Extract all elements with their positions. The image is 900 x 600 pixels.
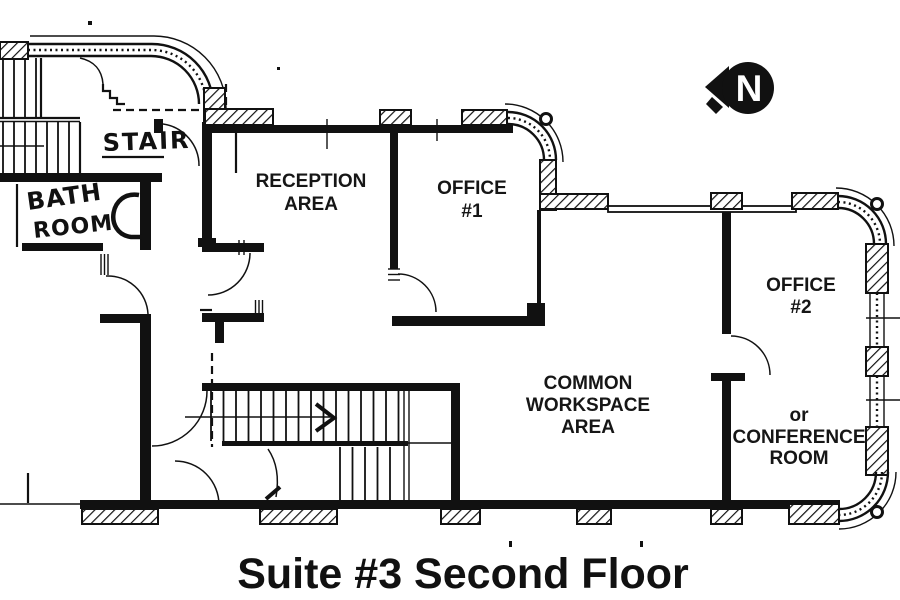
room-label-common-workspace: COMMON WORKSPACE AREA — [526, 373, 650, 438]
stair-label: STAIR — [102, 126, 191, 157]
svg-text:or: or — [790, 405, 810, 426]
room-label-reception: RECEPTION AREA — [256, 171, 367, 215]
door-arc — [398, 274, 436, 312]
door-arc — [175, 461, 219, 505]
office2-north-wall — [608, 188, 894, 246]
wall-pier — [789, 504, 839, 524]
wall-pier — [441, 509, 480, 524]
floor-plan-page: STAIR BATH ROOM — [0, 0, 900, 600]
room-label-bathroom: BATH ROOM — [25, 178, 114, 244]
svg-text:OFFICE: OFFICE — [766, 275, 836, 296]
curved-window-corner — [505, 104, 563, 162]
wall-pier — [866, 347, 888, 376]
svg-text:BATH: BATH — [25, 178, 104, 216]
north-letter: N — [736, 68, 763, 109]
stair-treads-upper — [211, 391, 399, 441]
wall-pier — [462, 110, 507, 125]
svg-text:COMMON: COMMON — [544, 373, 633, 394]
wall-pier — [866, 427, 888, 475]
column-marker — [541, 114, 552, 125]
wall-pier — [380, 110, 411, 125]
office2-divider-wall — [711, 212, 770, 503]
left-corridor — [0, 310, 219, 505]
north-wall — [203, 109, 513, 149]
door-arc — [152, 391, 207, 446]
curved-window-corner — [839, 472, 896, 529]
column-marker — [872, 199, 883, 210]
bathroom: BATH ROOM — [0, 173, 162, 314]
svg-text:RECEPTION: RECEPTION — [256, 171, 367, 192]
room-label-stair: STAIR — [102, 126, 191, 157]
interior-staircase — [185, 383, 460, 503]
wall-pier — [540, 194, 608, 209]
office1-walls — [388, 104, 608, 326]
floor-plan-drawing: STAIR BATH ROOM — [0, 0, 900, 600]
east-window-wall — [839, 244, 900, 529]
door-jamb — [256, 300, 263, 313]
door-jamb — [101, 254, 108, 275]
column-marker — [872, 507, 883, 518]
door-arc — [106, 276, 148, 314]
wall-pier — [205, 109, 273, 125]
south-wall — [80, 500, 840, 524]
svg-text:ROOM: ROOM — [769, 448, 828, 469]
door-arc — [80, 58, 103, 84]
toilet-fixture-icon — [113, 195, 142, 237]
room-label-office1: OFFICE #1 — [437, 178, 507, 222]
room-label-office2: OFFICE #2 — [766, 275, 836, 318]
door-arc — [731, 336, 770, 375]
page-title: Suite #3 Second Floor — [237, 550, 689, 598]
svg-text:ROOM: ROOM — [32, 211, 114, 244]
curved-window-corner — [836, 188, 894, 246]
room-label-conference: or CONFERENCE ROOM — [732, 405, 865, 469]
svg-text:AREA: AREA — [284, 194, 338, 215]
entry-canopy — [0, 21, 226, 122]
svg-text:#1: #1 — [461, 201, 483, 222]
wall-pier — [260, 509, 337, 524]
reception-walls — [198, 122, 264, 447]
svg-text:CONFERENCE: CONFERENCE — [732, 427, 865, 448]
svg-text:#2: #2 — [790, 297, 811, 318]
north-arrow-icon: N — [705, 62, 774, 114]
wall-pier — [0, 42, 28, 59]
wall-pier — [711, 193, 742, 209]
svg-text:WORKSPACE: WORKSPACE — [526, 395, 650, 416]
wall-pier — [792, 193, 838, 209]
svg-text:OFFICE: OFFICE — [437, 178, 507, 199]
step-detail — [103, 84, 125, 104]
wall-pier — [711, 509, 742, 524]
svg-text:AREA: AREA — [561, 417, 615, 438]
wall-pier — [82, 509, 158, 524]
wall-pier — [577, 509, 611, 524]
stair-treads-lower — [340, 447, 390, 500]
door-arc — [208, 253, 250, 295]
wall-pier — [866, 244, 888, 293]
